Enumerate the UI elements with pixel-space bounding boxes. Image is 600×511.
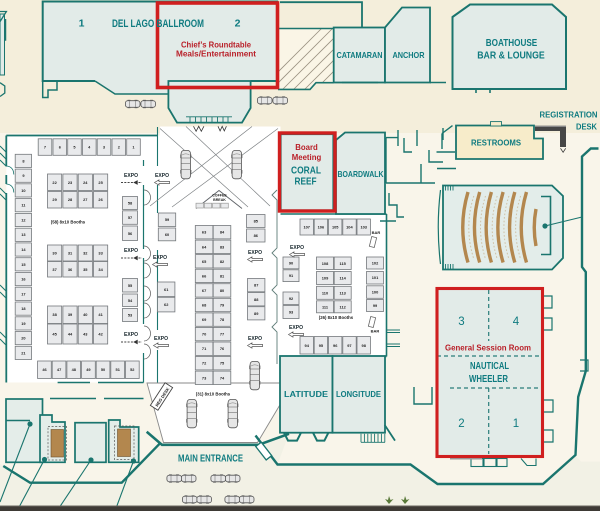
svg-text:2: 2	[458, 418, 464, 430]
svg-text:BOATHOUSE: BOATHOUSE	[486, 38, 538, 49]
svg-text:REGISTRATION: REGISTRATION	[540, 110, 598, 120]
svg-text:100: 100	[372, 290, 379, 295]
svg-text:CATAMARAN: CATAMARAN	[337, 51, 383, 60]
svg-text:COFFEE: COFFEE	[212, 193, 227, 197]
svg-text:1: 1	[79, 18, 85, 30]
svg-text:87: 87	[254, 283, 258, 288]
svg-text:Board: Board	[295, 143, 318, 152]
svg-text:EXPO: EXPO	[248, 250, 262, 256]
svg-text:17: 17	[21, 291, 25, 296]
svg-text:BREAK: BREAK	[213, 198, 226, 202]
svg-text:7: 7	[44, 145, 46, 150]
svg-text:90: 90	[289, 260, 293, 265]
svg-text:102: 102	[372, 261, 379, 266]
svg-text:109: 109	[322, 276, 329, 281]
svg-text:EXPO: EXPO	[154, 336, 168, 342]
svg-text:LONGITUDE: LONGITUDE	[336, 390, 382, 399]
svg-text:110: 110	[322, 290, 328, 295]
svg-text:101: 101	[372, 275, 379, 280]
svg-text:57: 57	[128, 215, 132, 220]
svg-text:EXPO: EXPO	[124, 332, 138, 338]
svg-text:EXPO: EXPO	[155, 173, 169, 179]
svg-text:37: 37	[52, 267, 56, 272]
svg-text:General Session Room: General Session Room	[445, 344, 531, 353]
svg-text:112: 112	[340, 304, 347, 309]
svg-text:27: 27	[83, 197, 87, 202]
svg-text:20: 20	[21, 336, 25, 341]
svg-text:ANCHOR: ANCHOR	[393, 51, 425, 60]
svg-text:BOARDWALK: BOARDWALK	[338, 169, 385, 179]
svg-text:77: 77	[220, 332, 224, 337]
svg-text:97: 97	[347, 343, 351, 348]
svg-text:DESK: DESK	[576, 122, 598, 132]
svg-text:BAR: BAR	[372, 230, 381, 235]
svg-text:WHEELER: WHEELER	[469, 374, 508, 385]
svg-text:60: 60	[165, 232, 169, 237]
svg-text:114: 114	[340, 276, 347, 281]
svg-text:BAR: BAR	[371, 329, 380, 334]
svg-text:EXPO: EXPO	[124, 248, 138, 254]
svg-text:2: 2	[235, 18, 241, 30]
svg-text:103: 103	[360, 225, 367, 230]
svg-text:Meeting: Meeting	[292, 153, 322, 162]
svg-text:BAR & LOUNGE: BAR & LOUNGE	[477, 51, 545, 62]
svg-text:40: 40	[83, 312, 87, 317]
svg-text:70: 70	[202, 332, 206, 337]
svg-text:107: 107	[303, 225, 310, 230]
svg-text:(31) 8x10 Booths: (31) 8x10 Booths	[196, 392, 231, 397]
svg-text:104: 104	[346, 225, 353, 230]
svg-text:REEF: REEF	[295, 176, 317, 188]
svg-text:80: 80	[220, 288, 224, 293]
svg-text:MAIN ENTRANCE: MAIN ENTRANCE	[178, 454, 243, 465]
svg-text:47: 47	[57, 367, 61, 372]
svg-text:10: 10	[21, 188, 25, 193]
svg-text:111: 111	[322, 304, 329, 309]
svg-text:115: 115	[340, 261, 347, 266]
svg-text:Meals/Entertainment: Meals/Entertainment	[176, 50, 256, 59]
svg-text:67: 67	[202, 288, 206, 293]
svg-text:(26) 8x10 Booths: (26) 8x10 Booths	[319, 315, 354, 320]
svg-text:30: 30	[52, 251, 56, 256]
svg-text:EXPO: EXPO	[124, 173, 138, 179]
svg-text:50: 50	[101, 367, 105, 372]
svg-text:1: 1	[513, 418, 519, 430]
svg-text:4: 4	[513, 316, 520, 328]
svg-text:108: 108	[322, 261, 329, 266]
svg-text:LATITUDE: LATITUDE	[284, 390, 329, 399]
svg-text:EXPO: EXPO	[290, 245, 304, 251]
svg-text:EXPO: EXPO	[153, 255, 167, 261]
svg-text:3: 3	[458, 316, 464, 328]
svg-text:Chief’s Roundtable: Chief’s Roundtable	[181, 41, 251, 50]
svg-text:DEL LAGO BALLROOM: DEL LAGO BALLROOM	[112, 18, 204, 30]
svg-text:113: 113	[340, 290, 347, 295]
svg-text:(58) 8x10 Booths: (58) 8x10 Booths	[51, 220, 86, 225]
svg-text:RESTROOMS: RESTROOMS	[471, 138, 521, 148]
svg-text:106: 106	[318, 225, 325, 230]
svg-text:NAUTICAL: NAUTICAL	[470, 361, 509, 372]
svg-text:105: 105	[332, 225, 339, 230]
svg-text:EXPO: EXPO	[248, 336, 262, 342]
svg-text:EXPO: EXPO	[289, 325, 303, 331]
